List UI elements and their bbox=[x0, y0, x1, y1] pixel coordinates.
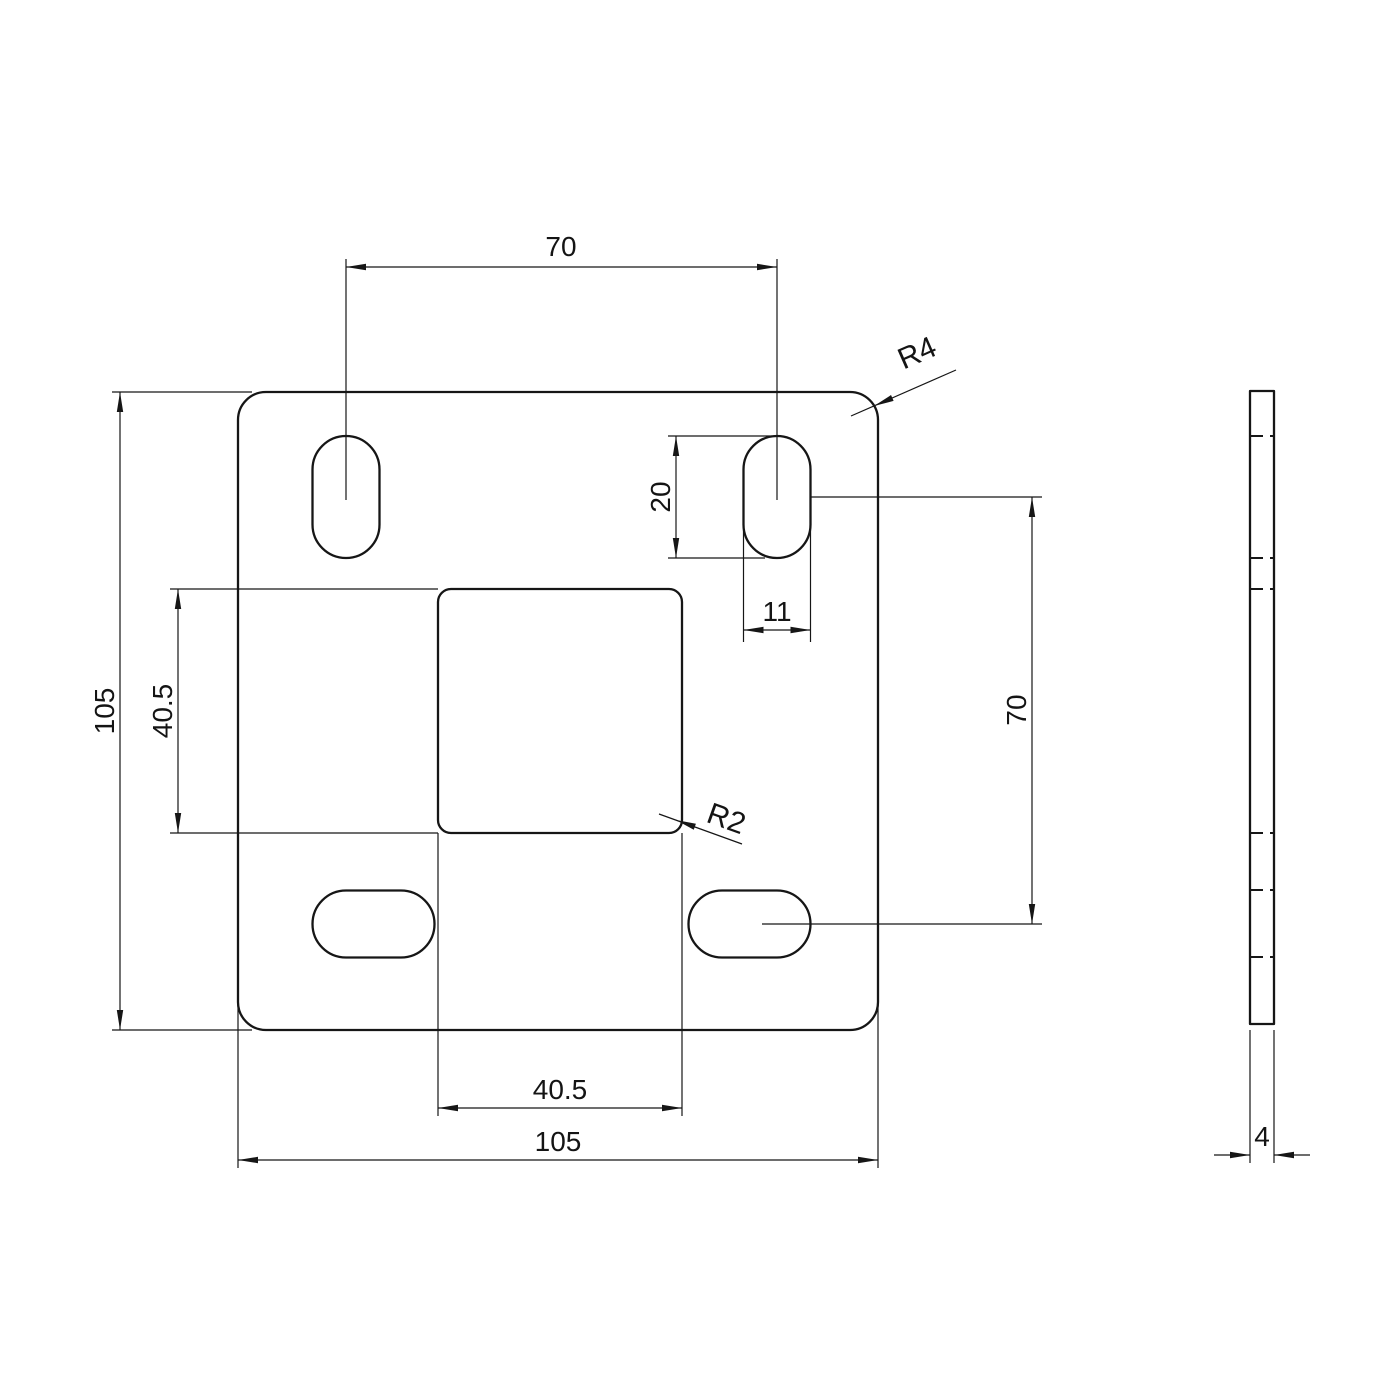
dim-label-slot-spacing-top: 70 bbox=[545, 231, 576, 262]
arrowhead bbox=[757, 264, 777, 270]
arrowhead bbox=[1274, 1152, 1294, 1158]
dim-label-thickness: 4 bbox=[1254, 1121, 1270, 1152]
arrowhead bbox=[673, 538, 679, 558]
slot-bottom-left bbox=[313, 891, 435, 958]
leader-label-corner-radius: R4 bbox=[893, 330, 941, 376]
arrowhead bbox=[238, 1157, 258, 1163]
drawing-page: 70 105 40.5 20 11 bbox=[0, 0, 1400, 1400]
arrowhead bbox=[1029, 497, 1035, 517]
dim-label-slot-spacing-right: 70 bbox=[1001, 694, 1032, 725]
arrowhead bbox=[175, 813, 181, 833]
side-view-outline bbox=[1250, 391, 1274, 1024]
arrowhead bbox=[791, 627, 811, 633]
dim-label-slot-length: 20 bbox=[645, 481, 676, 512]
arrowhead bbox=[1029, 904, 1035, 924]
arrowhead bbox=[175, 589, 181, 609]
leader-cutout-corner-radius: R2 bbox=[659, 797, 750, 844]
arrowhead bbox=[858, 1157, 878, 1163]
arrowhead bbox=[117, 1010, 123, 1030]
dim-label-slot-width: 11 bbox=[762, 596, 791, 627]
arrowhead bbox=[673, 436, 679, 456]
arrowhead bbox=[117, 392, 123, 412]
dim-slot-spacing-right: 70 bbox=[762, 497, 1042, 924]
arrowhead bbox=[1230, 1152, 1250, 1158]
side-view bbox=[1250, 391, 1274, 1024]
arrowhead bbox=[346, 264, 366, 270]
plate-outline bbox=[238, 392, 878, 1030]
arrowhead bbox=[438, 1105, 458, 1111]
dim-thickness: 4 bbox=[1214, 1030, 1310, 1163]
dim-label-cutout-height: 40.5 bbox=[147, 684, 178, 739]
dim-slot-length: 20 bbox=[645, 436, 772, 558]
dim-label-cutout-width: 40.5 bbox=[533, 1074, 588, 1105]
dim-slot-spacing-top: 70 bbox=[346, 231, 777, 500]
front-view bbox=[238, 392, 878, 1030]
technical-drawing-canvas: 70 105 40.5 20 11 bbox=[0, 0, 1400, 1400]
arrowhead bbox=[744, 627, 764, 633]
square-cutout bbox=[438, 589, 682, 833]
leader-label-cutout-corner-radius: R2 bbox=[703, 797, 750, 841]
dim-cutout-height: 40.5 bbox=[147, 589, 438, 833]
leader-line bbox=[851, 370, 956, 416]
arrowhead bbox=[662, 1105, 682, 1111]
dim-label-plate-width: 105 bbox=[535, 1126, 582, 1157]
dim-label-plate-height: 105 bbox=[89, 688, 120, 735]
dim-slot-width: 11 bbox=[744, 524, 811, 642]
dim-cutout-width: 40.5 bbox=[438, 833, 682, 1116]
leader-corner-radius: R4 bbox=[851, 330, 956, 416]
